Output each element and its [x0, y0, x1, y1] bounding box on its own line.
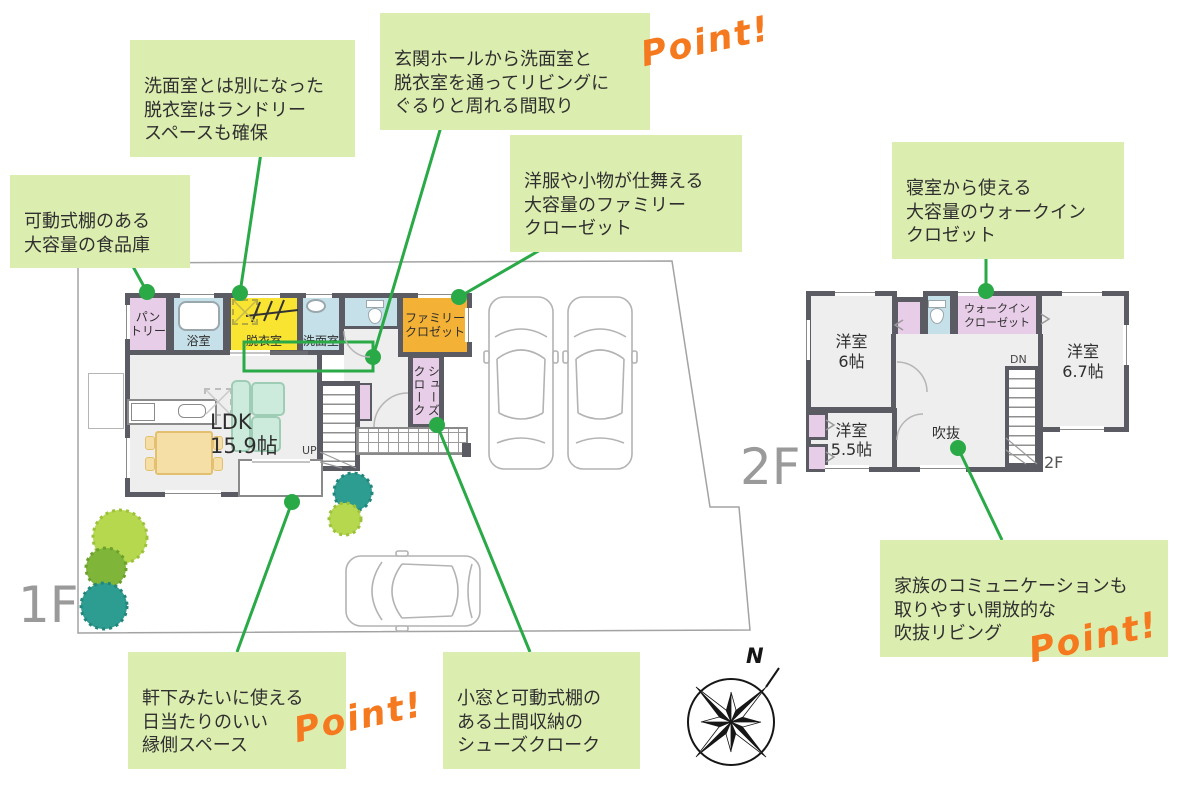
callout-shoe-closet-text: 小窓と可動式棚の ある土間収納の シューズクローク [457, 688, 601, 757]
room-washroom-label: 洗面室 [303, 334, 339, 348]
closet-bedroom55-a [806, 412, 828, 440]
room-family-closet: ファミリー クロゼット [398, 293, 472, 357]
room-dressing-label: 脱衣室 [246, 334, 282, 348]
stairs-1f [318, 381, 360, 471]
window [240, 291, 280, 298]
dining-table [155, 431, 213, 475]
room-bedroom55-label: 洋室 5.5帖 [831, 421, 872, 459]
side-door-nook [88, 373, 124, 429]
void-label: 吹抜 [932, 426, 960, 442]
window [418, 291, 458, 298]
callout-engawa-text: 軒下みたいに使える 日当たりのいい 縁側スペース [142, 688, 303, 757]
callout-laundry-text: 洗面室とは別になった 脱衣室はランドリー スペースも確保 [144, 76, 324, 145]
toilet-tank-1f [366, 300, 384, 308]
window [230, 350, 270, 356]
window [123, 305, 130, 339]
floor2-heading: 2F [740, 438, 801, 496]
callout-walkin-closet-text: 寝室から使える 大容量のウォークイン クロゼット [906, 178, 1086, 247]
window [1062, 289, 1102, 296]
washbasin [306, 299, 326, 313]
window [180, 291, 214, 298]
room-walkin-closet: ウォークイン クローゼット [953, 291, 1041, 340]
callout-shoe-closet: 小窓と可動式棚の ある土間収納の シューズクローク [443, 652, 640, 769]
point-annotation: Point! [637, 9, 774, 75]
window [465, 308, 472, 342]
car-icon [563, 297, 637, 469]
window [920, 465, 966, 472]
ldk-label: LDK 15.9帖 [210, 410, 278, 458]
window [252, 459, 310, 465]
callout-family-closet: 洋服や小物が仕舞える 大容量のファミリー クローゼット [510, 135, 742, 252]
room-shoe-closet-label: シューズ クローク [412, 365, 441, 417]
room-shoe-closet: シューズ クローク [408, 353, 444, 429]
entry-tile-floor [356, 427, 468, 455]
washer-space [232, 299, 258, 325]
floor1-heading: 1F [18, 576, 79, 634]
room-bedroom6-label: 洋室 6帖 [835, 332, 867, 370]
window [803, 320, 810, 360]
room-bath-label: 浴室 [186, 334, 210, 348]
callout-walkin-closet: 寝室から使える 大容量のウォークイン クロゼット [892, 142, 1124, 259]
callout-laundry: 洗面室とは別になった 脱衣室はランドリー スペースも確保 [130, 40, 355, 157]
dining-chair [213, 457, 223, 471]
room-bedroom67-label: 洋室 6.7帖 [1062, 342, 1103, 380]
callout-pantry-text: 可動式棚のある 大容量の食品庫 [24, 211, 150, 256]
dining-chair [145, 457, 155, 471]
stairs-down-label: DN [1010, 354, 1027, 367]
window [958, 289, 982, 296]
room-pantry-label: パン トリー [130, 310, 166, 339]
floor-plan-page: パン トリー 浴室 脱衣室 洗面室 ファミリー クロゼット シューズ クローク [0, 0, 1200, 791]
window [1123, 325, 1130, 365]
room-walkin-closet-label: ウォークイン クローゼット [964, 302, 1030, 328]
floor2-small-label: 2F [1044, 454, 1063, 472]
stove [131, 403, 155, 421]
room-family-closet-label: ファミリー クロゼット [405, 311, 465, 340]
compass-icon [688, 668, 779, 765]
callout-family-closet-text: 洋服や小物が仕舞える 大容量のファミリー クローゼット [524, 171, 703, 240]
room-bedroom67: 洋室 6.7帖 [1037, 291, 1129, 432]
car-icon [346, 551, 480, 631]
kitchen-sink [178, 404, 206, 418]
window [123, 438, 130, 478]
window [825, 465, 869, 472]
bathtub [178, 301, 220, 331]
room-pantry: パン トリー [125, 293, 171, 355]
stairs-up-label: UP [302, 445, 317, 458]
window [306, 291, 332, 298]
compass-north-label: N [746, 644, 764, 668]
callout-circulation: 玄関ホールから洗面室と 脱衣室を通ってリビングに ぐるりと周れる間取り [380, 13, 650, 130]
dining-chair [145, 436, 155, 450]
stairs-2f [1005, 366, 1039, 467]
callout-pantry: 可動式棚のある 大容量の食品庫 [10, 175, 190, 268]
room-bedroom6: 洋室 6帖 [806, 291, 897, 412]
window [165, 490, 221, 497]
callout-circulation-text: 玄関ホールから洗面室と 脱衣室を通ってリビングに ぐるりと周れる間取り [394, 49, 609, 118]
car-icon [484, 297, 558, 469]
understair-closet [358, 383, 372, 421]
entry-step [462, 443, 471, 457]
toilet-tank-2f [928, 300, 946, 308]
window [835, 289, 875, 296]
window [1060, 426, 1104, 433]
